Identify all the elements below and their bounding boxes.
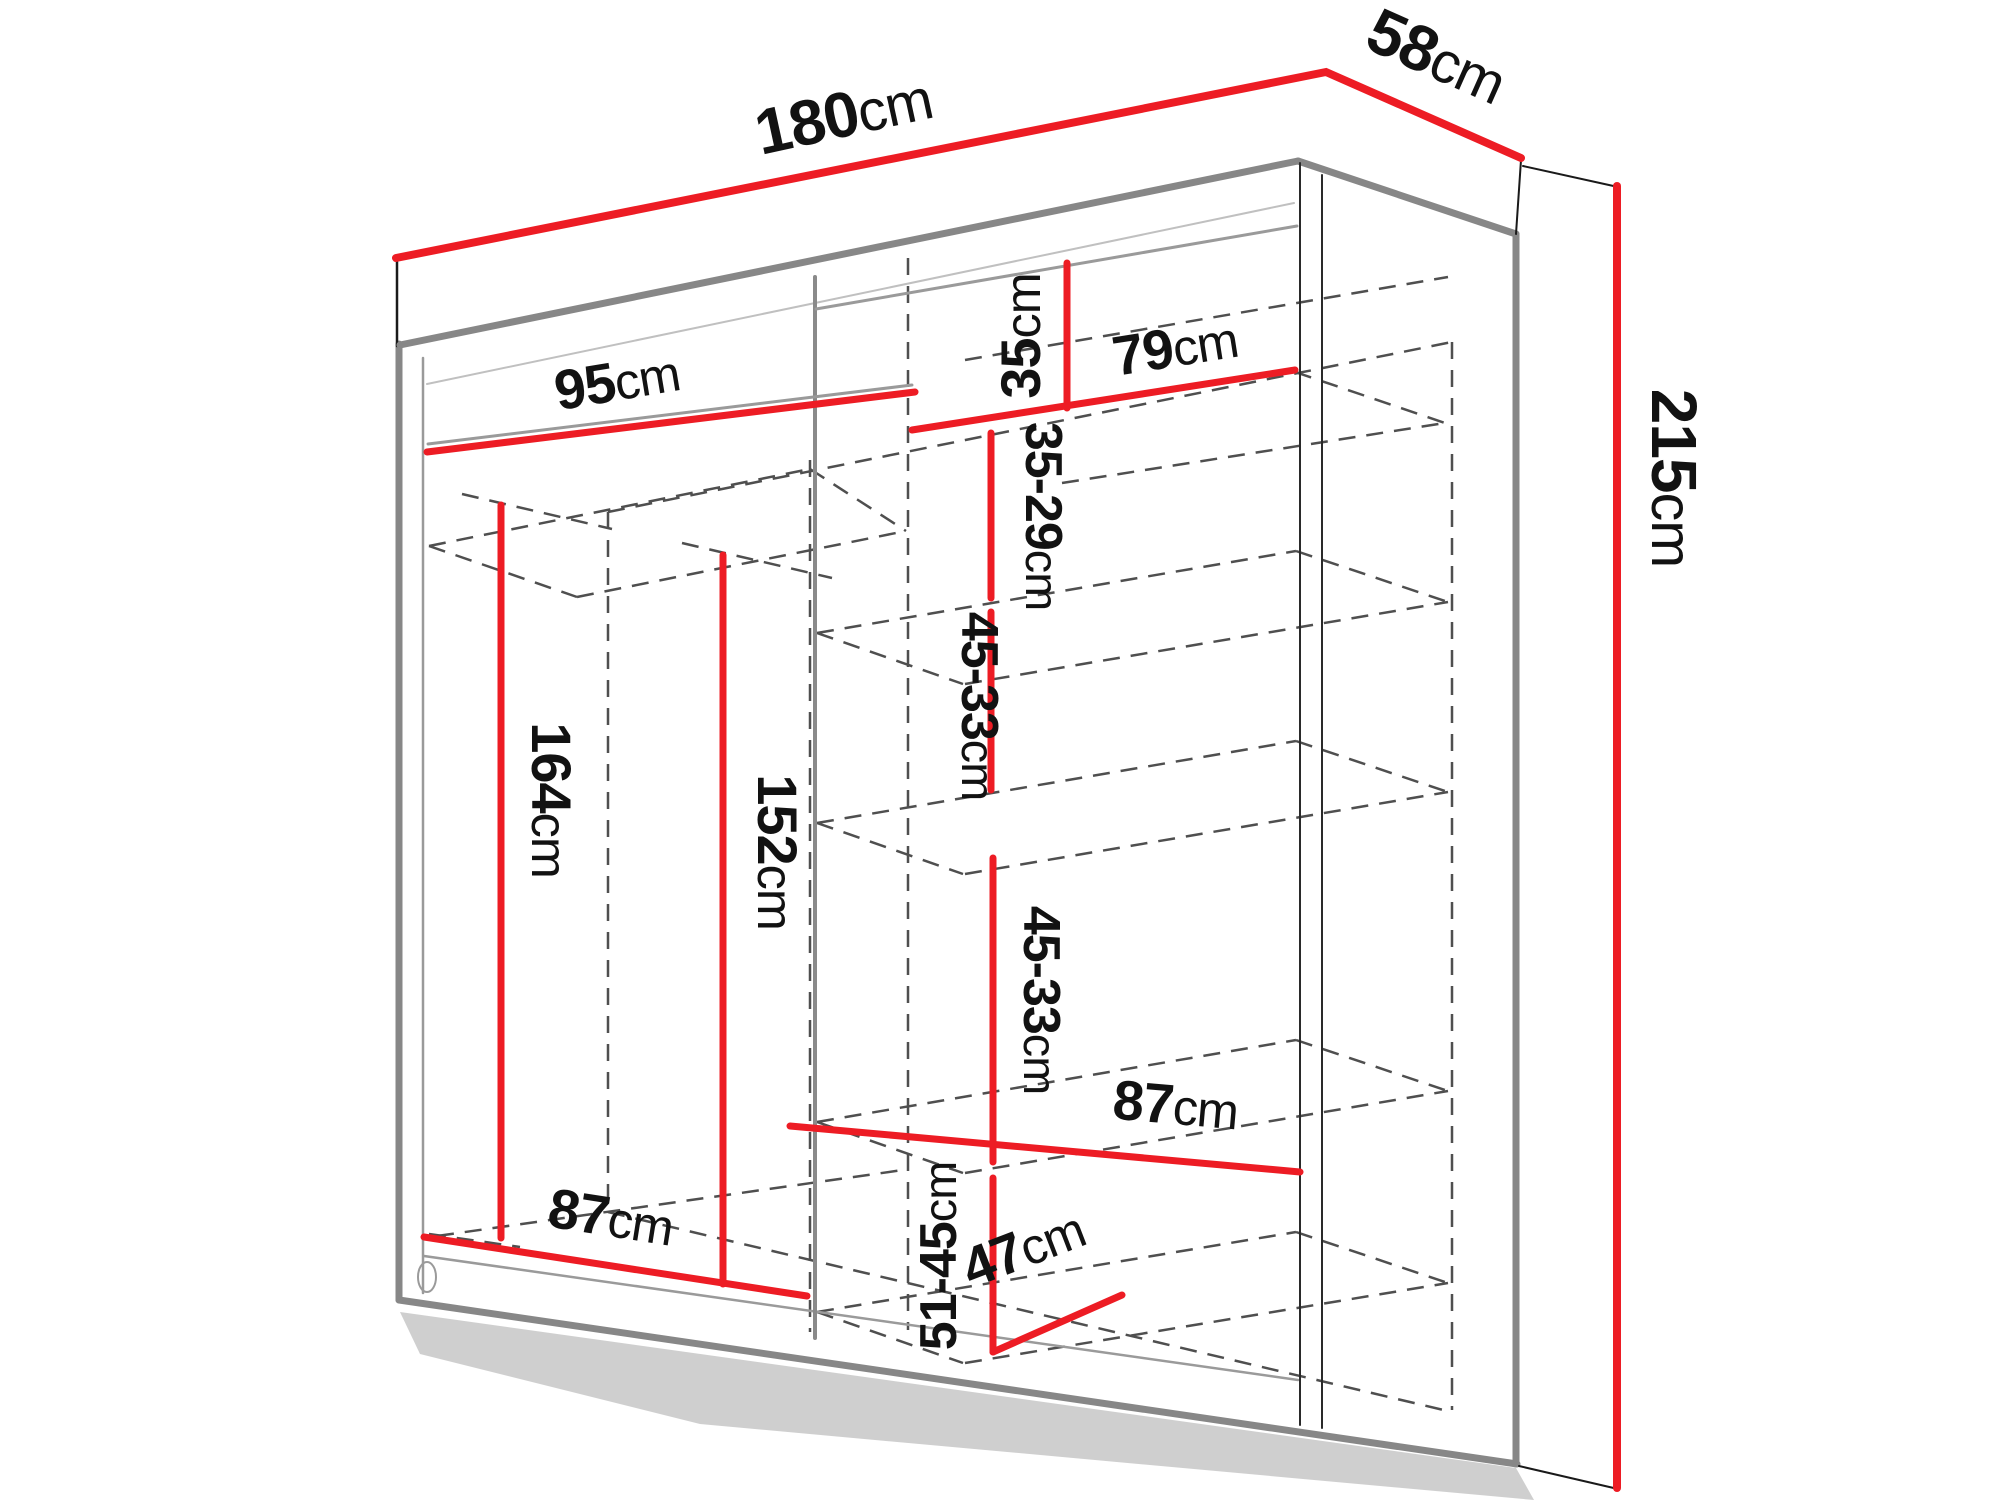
top-right-side-edge [1298, 161, 1516, 234]
wardrobe-dimension-diagram: 180cm 58cm 215cm 95cm 35cm 79cm 35-29cm … [0, 0, 2000, 1500]
shelf3-front-dashed [817, 741, 1296, 823]
shelf2-left-side-dashed [817, 633, 963, 684]
height-extension-bottom [1519, 1466, 1618, 1489]
fascia-back-right-edge [1516, 160, 1521, 234]
shelf1-back-dashed [1062, 423, 1445, 483]
dim-label-gap-45-33-lower: 45-33cm [1012, 906, 1070, 1094]
dim-line-depth-47 [993, 1295, 1122, 1352]
right-top-shelf-edge [816, 226, 1297, 309]
dim-label-gap-35-29: 35-29cm [1014, 422, 1072, 610]
dim-label-floor-87-left: 87cm [544, 1176, 678, 1258]
left-top-shelf-side-dashed [810, 469, 906, 531]
dim-label-rail-95: 95cm [550, 339, 684, 422]
dim-label-depth-47: 47cm [953, 1196, 1093, 1300]
dim-label-shelf-87-right: 87cm [1110, 1068, 1240, 1142]
dim-label-shelf-79: 79cm [1108, 306, 1242, 388]
dim-label-gap-45-33-upper: 45-33cm [950, 612, 1008, 800]
shelf3-side-dashed [1296, 741, 1448, 792]
bottom-shelf-back-dashed [965, 1283, 1448, 1363]
shelf3-back-dashed [965, 792, 1448, 874]
dim-label-rail-height-152: 152cm [746, 774, 809, 930]
shelf1-side-dashed [1295, 372, 1445, 423]
dim-label-rail-height-164: 164cm [520, 722, 583, 878]
door-roller-detail [418, 1262, 436, 1292]
dim-label-gap-35: 35cm [989, 273, 1052, 398]
dim-line-shelf-79 [912, 370, 1295, 430]
shelf2-side-dashed [1296, 551, 1448, 602]
bottom-shelf-side-dashed [1296, 1232, 1448, 1283]
dim-label-height-215: 215cm [1638, 389, 1710, 568]
shelf4-side-dashed [1296, 1040, 1448, 1091]
diagram-canvas: 180cm 58cm 215cm 95cm 35cm 79cm 35-29cm … [0, 0, 2000, 1500]
height-extension-top [1523, 166, 1618, 187]
left-top-shelf-front-dashed [429, 469, 810, 546]
shelf3-left-side-dashed [817, 823, 963, 874]
hanging-rail-bracket-dashed [462, 494, 612, 529]
shelf2-back-dashed [965, 602, 1448, 684]
left-top-shelf-back-dashed [577, 531, 906, 597]
